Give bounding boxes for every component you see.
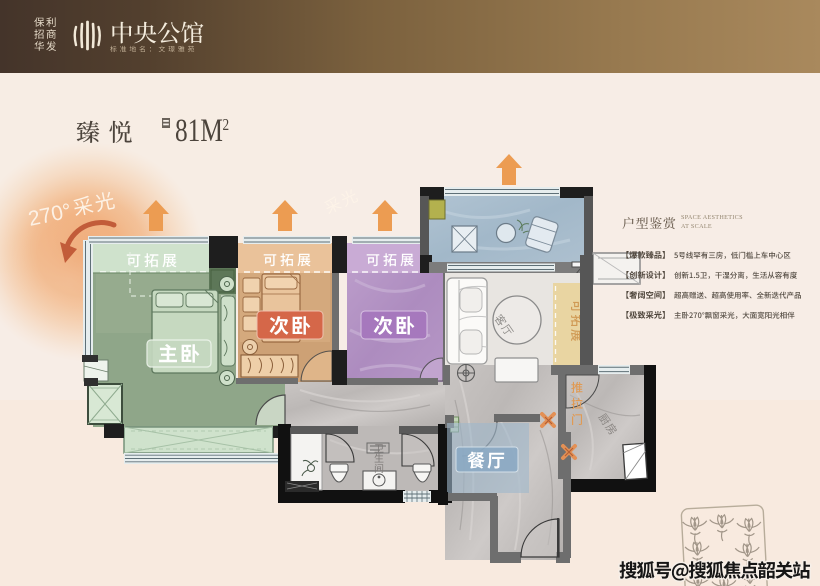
svg-text:81M: 81M [175, 113, 223, 149]
svg-text:2: 2 [223, 116, 230, 135]
svg-text:SPACE AESTHETICS: SPACE AESTHETICS [681, 214, 743, 221]
svg-text:AT SCALE: AT SCALE [681, 223, 712, 230]
